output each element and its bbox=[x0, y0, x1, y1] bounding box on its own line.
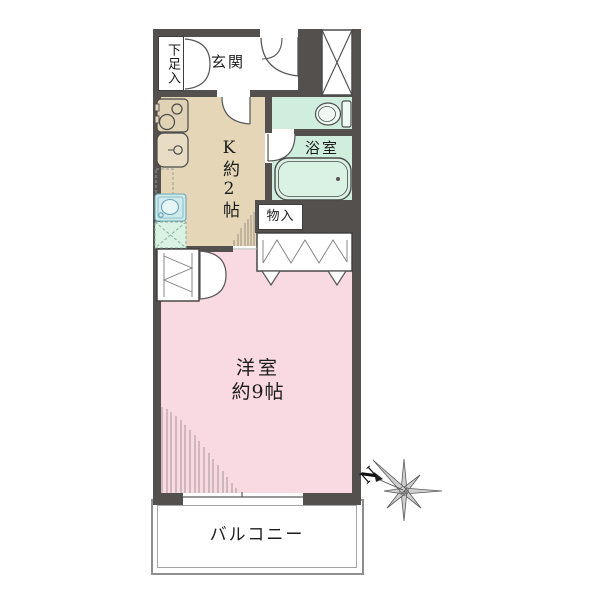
kitchen-floor bbox=[161, 97, 265, 246]
wall-left bbox=[153, 29, 161, 505]
balcony-label: バルコニー bbox=[157, 525, 357, 546]
toilet-floor bbox=[272, 97, 352, 129]
front-door bbox=[261, 37, 298, 76]
north-arrowhead-icon bbox=[374, 472, 383, 482]
wall-bath-left bbox=[265, 163, 272, 200]
wall-entrance-toilet bbox=[250, 90, 352, 97]
wall-right bbox=[352, 29, 361, 505]
balcony-window bbox=[183, 493, 303, 505]
storage-label: 物入 bbox=[258, 209, 303, 225]
bathroom-label: 浴室 bbox=[292, 139, 352, 158]
floor-plan: N 下足入 玄関 K約2帖 浴室 物入 洋室 約9帖 バルコニー bbox=[0, 0, 600, 600]
wall-toilet-bath bbox=[294, 129, 352, 136]
wall-kitchen-room bbox=[153, 246, 233, 252]
compass-icon: N bbox=[357, 459, 442, 521]
wall-bottom-right bbox=[303, 493, 361, 505]
wall-entry-pillar bbox=[298, 29, 322, 97]
entrance-label: 玄関 bbox=[196, 53, 260, 72]
meter-box bbox=[322, 30, 352, 95]
wall-entrance-kitchen bbox=[153, 90, 217, 97]
western-room-name-label: 洋室 bbox=[208, 357, 308, 381]
western-room-size-label: 約9帖 bbox=[208, 381, 308, 405]
wall-toilet-left bbox=[265, 97, 272, 133]
shoe-storage-label: 下足入 bbox=[162, 41, 180, 87]
kitchen-label: K約2帖 bbox=[219, 131, 239, 226]
wall-bottom-left bbox=[153, 493, 183, 505]
